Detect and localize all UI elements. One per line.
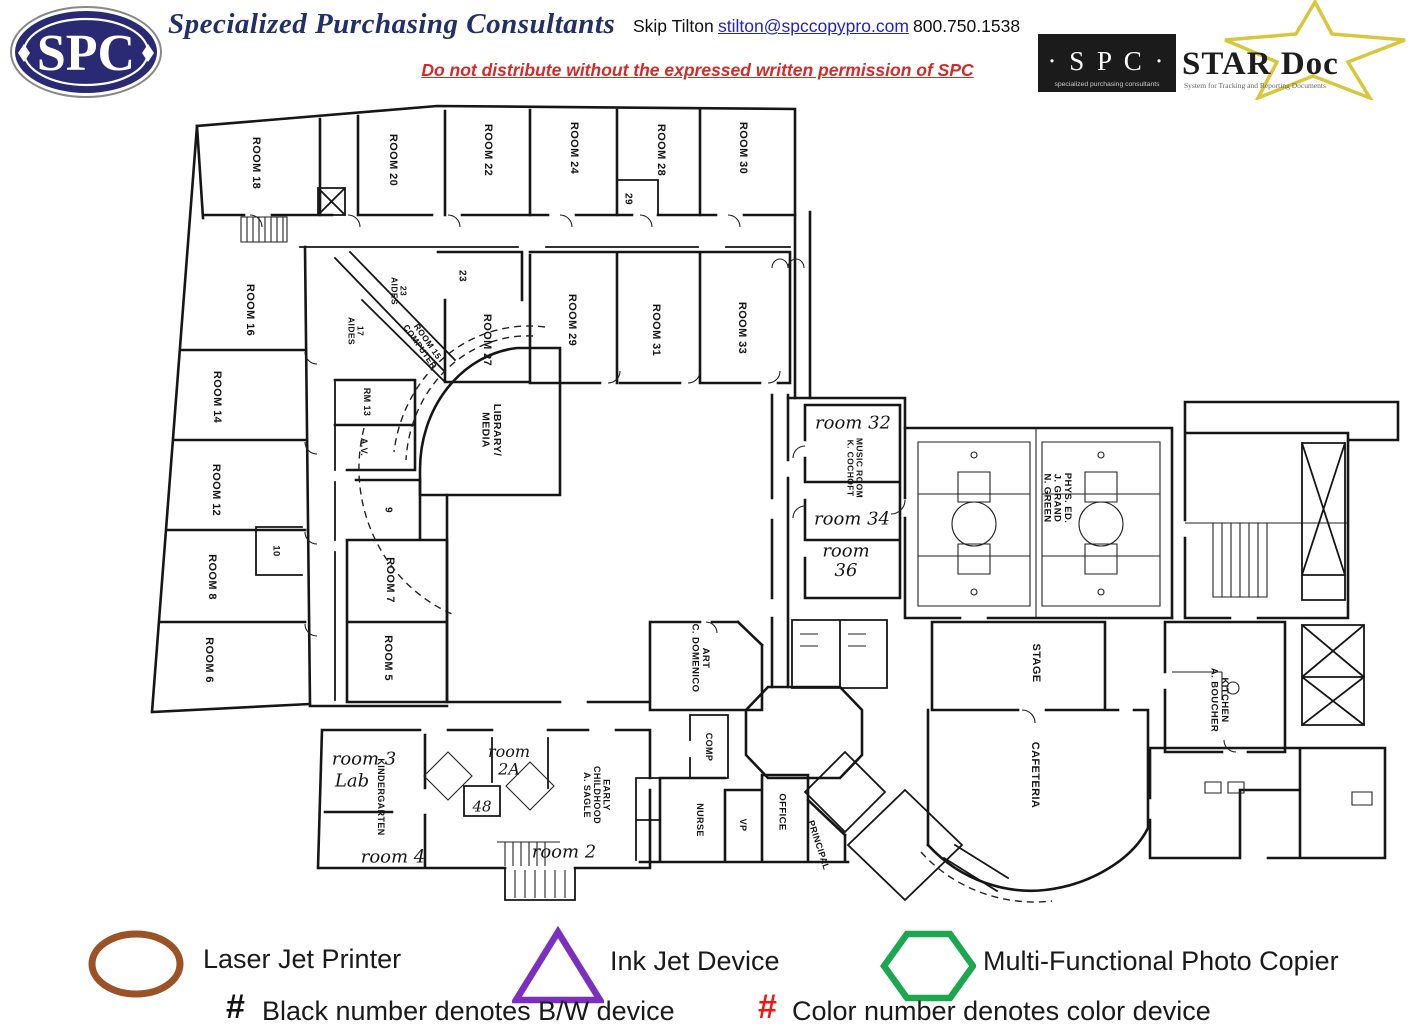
room-label: KINDERGARTEN bbox=[376, 758, 386, 835]
room-label: ARTC. DOMENICO bbox=[690, 624, 711, 693]
floorplan-room-labels: ROOM 18ROOM 20ROOM 22ROOM 24ROOM 28ROOM … bbox=[203, 122, 1230, 871]
legend-label-copier: Multi-Functional Photo Copier bbox=[983, 946, 1339, 977]
room-label: STAGE bbox=[1030, 643, 1042, 682]
room-label: COMP bbox=[704, 733, 714, 762]
room-label: NURSE bbox=[695, 803, 705, 837]
room-label: room36 bbox=[822, 541, 869, 581]
room-label: 23AIDES bbox=[389, 277, 408, 305]
room-label: room2A bbox=[488, 742, 530, 778]
room-label: 48 bbox=[471, 797, 491, 815]
room-label: room 34 bbox=[814, 508, 890, 529]
room-label: ROOM 33 bbox=[736, 302, 748, 354]
legend-note-bw: Black number denotes B/W device bbox=[262, 996, 675, 1027]
room-label: ROOM 16 bbox=[244, 284, 256, 336]
room-label: 17AIDES bbox=[346, 317, 365, 345]
room-label: room 4 bbox=[361, 846, 426, 867]
room-label: 10 bbox=[271, 545, 282, 556]
room-label: ROOM 27 bbox=[481, 314, 493, 366]
room-label: ROOM 8 bbox=[206, 554, 218, 600]
room-label: ROOM 12 bbox=[210, 464, 222, 516]
room-label: A.V. bbox=[359, 438, 369, 456]
room-label: RM 13 bbox=[362, 388, 372, 417]
legend-label-laserjet: Laser Jet Printer bbox=[203, 944, 401, 975]
room-label: PHYS. ED.J. GRANDN. GREEN bbox=[1041, 473, 1073, 524]
room-label: LIBRARY/MEDIA bbox=[480, 404, 503, 456]
room-label: ROOM 18 bbox=[250, 137, 262, 189]
legend-label-inkjet: Ink Jet Device bbox=[610, 946, 780, 977]
room-label: ROOM 29 bbox=[566, 294, 578, 346]
room-label: ROOM 6 bbox=[203, 637, 215, 683]
room-label: ROOM 14 bbox=[211, 371, 223, 424]
room-label: ROOM 20 bbox=[387, 134, 399, 186]
floorplan: ROOM 18ROOM 20ROOM 22ROOM 24ROOM 28ROOM … bbox=[0, 0, 1425, 1035]
legend-note-color: Color number denotes color device bbox=[792, 996, 1211, 1027]
room-label: room 3 bbox=[332, 748, 397, 769]
room-label: PRINCIPAL bbox=[806, 819, 831, 871]
room-label: OFFICE bbox=[777, 793, 788, 830]
ink-jet-device-icon bbox=[512, 926, 604, 1006]
room-label: ROOM 24 bbox=[568, 122, 580, 175]
room-label: ROOM 28 bbox=[655, 124, 667, 176]
room-label: 23 bbox=[457, 270, 468, 282]
bw-hash-symbol: # bbox=[226, 988, 245, 1027]
laser-jet-printer-icon bbox=[86, 928, 188, 1000]
room-label: 29 bbox=[623, 193, 634, 205]
room-label: 9 bbox=[383, 507, 394, 513]
room-label: room 32 bbox=[815, 412, 891, 433]
page: SPC Specialized Purchasing Consultants S… bbox=[0, 0, 1425, 1035]
room-label: KITCHENA. BOUCHER bbox=[1209, 668, 1230, 732]
room-label: VP bbox=[738, 819, 748, 832]
room-label: ROOM 30 bbox=[737, 122, 749, 174]
room-label: ROOM 5 bbox=[382, 635, 394, 681]
room-label: MUSIC ROOMK. COCHOFT bbox=[845, 438, 864, 498]
room-label: EARLYCHILDHOODA. SAGLE bbox=[582, 766, 611, 824]
room-label: ROOM 22 bbox=[482, 124, 494, 176]
room-label: ROOM 7 bbox=[384, 557, 396, 603]
room-label: ROOM 31 bbox=[650, 304, 662, 356]
room-label: room 2 bbox=[532, 841, 597, 862]
photo-copier-icon bbox=[880, 926, 976, 1006]
room-label: CAFETERIA bbox=[1029, 742, 1041, 809]
color-hash-symbol: # bbox=[758, 988, 777, 1027]
room-label: Lab bbox=[334, 770, 369, 791]
